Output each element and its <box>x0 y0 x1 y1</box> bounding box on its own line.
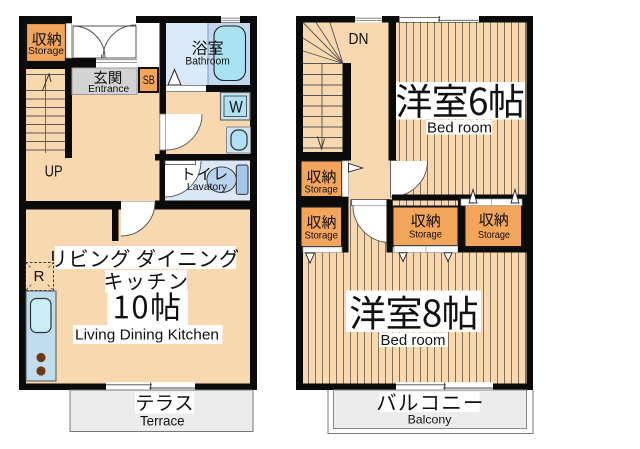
svg-text:Storage: Storage <box>28 45 64 57</box>
svg-text:Bed room: Bed room <box>381 332 446 349</box>
svg-text:Living Dining Kitchen: Living Dining Kitchen <box>75 328 219 344</box>
svg-text:Entrance: Entrance <box>88 84 129 95</box>
svg-text:Balcony: Balcony <box>408 413 452 427</box>
svg-text:Lavatory: Lavatory <box>187 182 228 193</box>
svg-text:Storage: Storage <box>304 185 338 196</box>
svg-text:DN: DN <box>349 31 369 48</box>
svg-text:UP: UP <box>45 163 63 180</box>
svg-text:Terrace: Terrace <box>140 412 185 428</box>
svg-text:Storage: Storage <box>304 231 338 242</box>
svg-text:W: W <box>229 98 243 117</box>
svg-text:Bed room: Bed room <box>427 119 492 136</box>
svg-text:Bathroom: Bathroom <box>185 56 229 68</box>
svg-text:R: R <box>34 268 45 285</box>
svg-text:SB: SB <box>143 73 155 87</box>
svg-text:Storage: Storage <box>409 230 442 241</box>
svg-text:Storage: Storage <box>478 230 510 241</box>
